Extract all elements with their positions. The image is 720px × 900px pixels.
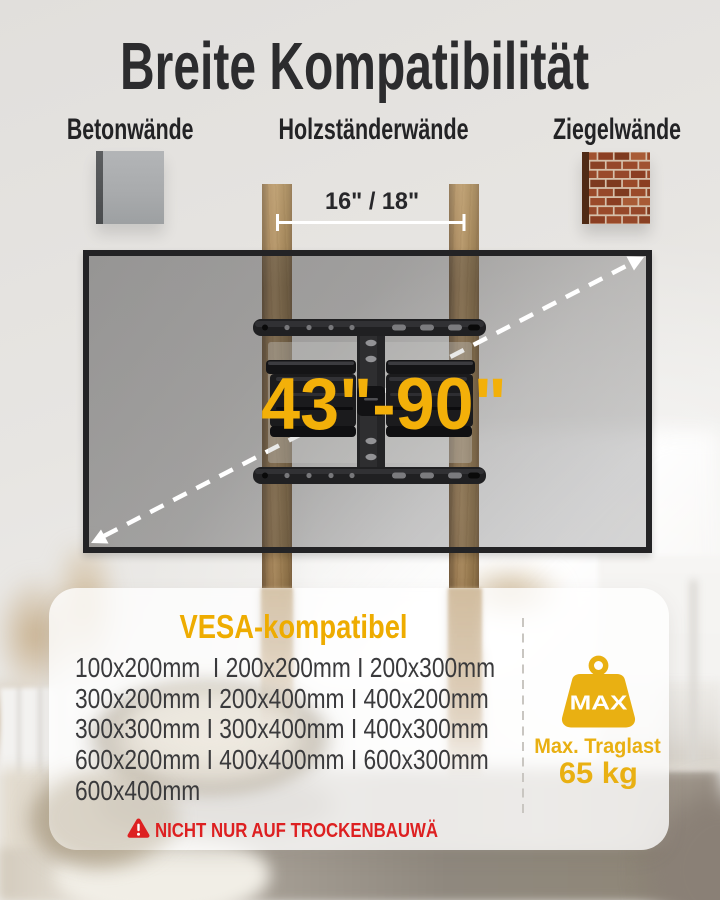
svg-text:MAX: MAX	[570, 691, 628, 713]
